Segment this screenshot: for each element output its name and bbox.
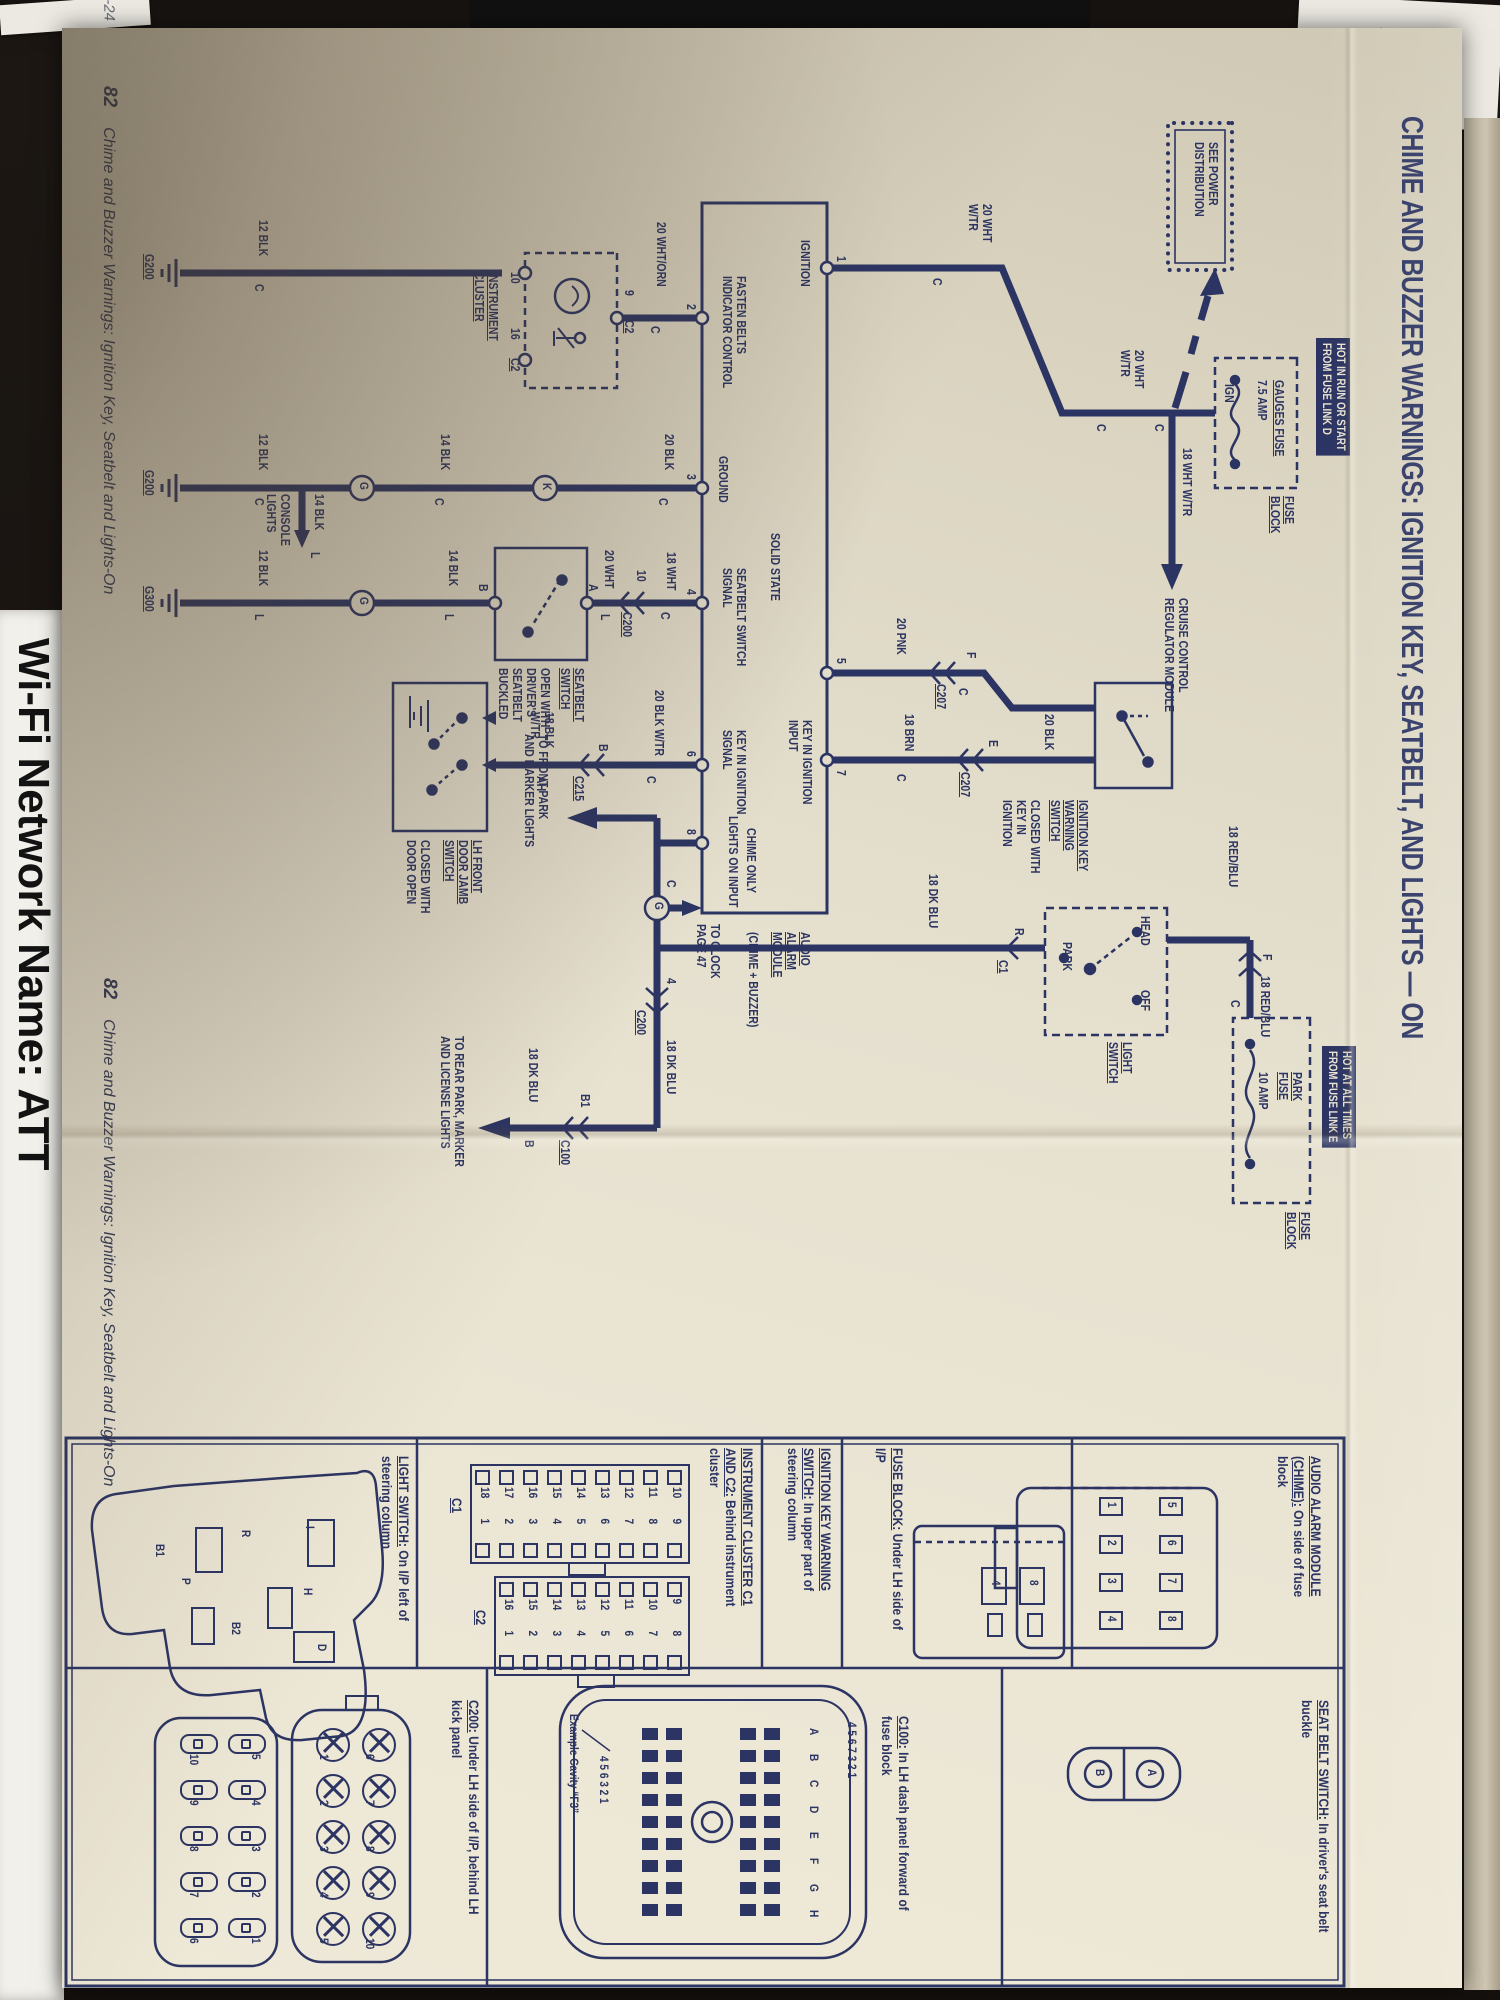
footer-left: 82Chime and Buzzer Warnings: Ignition Ke… [98, 86, 120, 594]
pin [619, 1655, 634, 1670]
wire-label: SEATBELT SWITCH SIGNAL [720, 568, 748, 666]
wire-label: CONSOLE LIGHTS [264, 494, 292, 546]
c100-cavity-letter: E [807, 1832, 820, 1839]
pin [667, 1543, 682, 1558]
wire-label: A [586, 584, 600, 592]
wire-label: C200 [620, 612, 634, 637]
wire-label: 10 AMP [1256, 1072, 1270, 1110]
handwriting-mat: -24 [100, 0, 118, 21]
wire-label: B [522, 1140, 536, 1148]
c200-terminal-number: 10 [187, 1754, 200, 1765]
pin [547, 1470, 562, 1485]
pin: 4 [574, 1631, 588, 1637]
connector-pin-number: 3 [1105, 1578, 1118, 1584]
wire-label: 4 [664, 978, 678, 984]
wire-label: 16 [508, 328, 522, 340]
wire-label: TO CLOCK PAGE 47 [694, 924, 722, 979]
wire-label: 10 [634, 570, 648, 582]
light-switch-pin: P [179, 1578, 192, 1585]
pin: 8 [646, 1519, 660, 1525]
c200-pin-number: 4 [317, 1892, 330, 1898]
page-title: CHIME AND BUZZER WARNINGS: IGNITION KEY,… [1394, 116, 1430, 1039]
pin: 16 [502, 1599, 516, 1610]
c200-terminal-number: 7 [187, 1892, 200, 1898]
wire-label: 7 [834, 770, 848, 776]
c200-terminal-number: 3 [249, 1846, 262, 1852]
page-number: 82 [99, 86, 120, 107]
c200-terminal-number: 2 [249, 1892, 262, 1898]
wire-label: B [476, 584, 490, 592]
connector-pin-number: 7 [1165, 1578, 1178, 1584]
wire-label: FUSE BLOCK [1268, 496, 1296, 533]
wire-label: CHIME ONLY [744, 828, 758, 893]
c100-cavity-letter: D [807, 1806, 820, 1813]
wire-label: G [652, 902, 665, 910]
c200-terminal-number: 8 [187, 1846, 200, 1852]
wire-label: L [308, 552, 322, 558]
pin: 3 [550, 1631, 564, 1637]
wire-label: 20 BLK [1042, 714, 1056, 750]
wire-label: LH FRONT DOOR JAMB SWITCH [442, 840, 484, 904]
wire-label: 1 [834, 256, 848, 262]
wire-label: C [894, 774, 908, 782]
pin: 4 [550, 1519, 564, 1525]
pin [595, 1470, 610, 1485]
c100-cavity-note: Example Cavity “F3” [567, 1714, 580, 1813]
wire-label: OPEN WITH DRIVER'S SEATBELT BUCKLED [496, 668, 552, 728]
wire-label: AUDIO ALARM MODULE [770, 932, 812, 978]
c100-cavity-letter: H [807, 1910, 820, 1917]
pin [499, 1655, 514, 1670]
pin [667, 1655, 682, 1670]
wire-label: 18 RED/BLU [1226, 826, 1240, 887]
pin: 7 [646, 1631, 660, 1637]
pin [643, 1470, 658, 1485]
schematic-art [62, 28, 1462, 1988]
pin: 2 [526, 1631, 540, 1637]
pin [643, 1543, 658, 1558]
photo-stage: -24 D.C Wi-Fi Network Name: ATT [0, 0, 1500, 2000]
c200-pin-number: 3 [317, 1846, 330, 1852]
wire-label: 12 BLK [256, 550, 270, 586]
pin: 6 [622, 1631, 636, 1637]
wire-label: K [540, 483, 553, 490]
wire-label: 20 BLK [662, 434, 676, 470]
wire-label: 18 RED/BLU [1258, 976, 1272, 1037]
wire-label: 4 [684, 589, 698, 595]
wire-label: C [648, 326, 662, 334]
wire-label: 12 BLK [256, 434, 270, 470]
c100-cavity-letter: G [807, 1884, 820, 1892]
c200-terminal [228, 1826, 266, 1846]
pin [571, 1655, 586, 1670]
pin [499, 1470, 514, 1485]
pin [595, 1655, 610, 1670]
pin: 12 [598, 1599, 612, 1610]
wire-label: 18 DK BLU [664, 1040, 678, 1094]
connector-pin-number: 6 [1165, 1540, 1178, 1546]
c200-terminal-number: 6 [187, 1938, 200, 1944]
c200-terminal-number: 4 [249, 1800, 262, 1806]
c200-terminal [180, 1872, 218, 1892]
wire-label: C [252, 284, 266, 292]
wire-label: G200 [142, 470, 156, 496]
connector-id: C1 [448, 1498, 464, 1513]
light-switch-pin: D [315, 1644, 328, 1651]
pin: 14 [550, 1599, 564, 1610]
wire-label: CLOSED WITH KEY IN IGNITION [1000, 800, 1042, 874]
wire-label: IGNITION [798, 240, 812, 287]
locator-heading: LIGHT SWITCH: On I/P left of steering co… [379, 1456, 412, 1641]
pin [595, 1543, 610, 1558]
pin: 8 [670, 1631, 684, 1637]
c200-terminal-number: 1 [249, 1938, 262, 1944]
wire-label: AH [534, 776, 548, 791]
pin [499, 1582, 514, 1597]
pin: 3 [526, 1519, 540, 1525]
pin [667, 1582, 682, 1597]
wire-label: C [930, 278, 944, 286]
c200-pin-number: 1 [317, 1754, 330, 1760]
footer-text: Chime and Buzzer Warnings: Ignition Key,… [100, 1019, 117, 1486]
pin [667, 1470, 682, 1485]
pin: 1 [502, 1631, 516, 1637]
locator-heading: INSTRUMENT CLUSTER C1 AND C2: Behind ins… [706, 1448, 756, 1624]
wire-label: 3 [684, 474, 698, 480]
wire-label: KEY IN IGNITION SIGNAL [720, 730, 748, 814]
pin: 14 [574, 1487, 588, 1498]
wire-label: CLOSED WITH DOOR OPEN [404, 840, 432, 914]
wire-label: G [357, 482, 370, 490]
c100-cavity-letter: F [807, 1858, 820, 1864]
wire-label: LIGHTS ON INPUT [726, 816, 740, 908]
c200-terminal [228, 1872, 266, 1892]
connector-pin-letter: A [1145, 1769, 1158, 1776]
wire-label: C [656, 498, 670, 506]
connector-pin-number: 1 [1105, 1502, 1118, 1508]
pin [475, 1543, 490, 1558]
light-switch-pin: H [301, 1588, 314, 1595]
c200-terminal [228, 1734, 266, 1754]
wire-label: C2 [508, 358, 522, 371]
wire-label: 18 WHT [664, 552, 678, 591]
wire-label: C [432, 498, 446, 506]
wire-label: 18 WHT W/TR [1180, 448, 1194, 516]
wire-label: G200 [142, 254, 156, 280]
pin [499, 1543, 514, 1558]
pin: 7 [622, 1519, 636, 1525]
wire-label: KEY IN IGNITION INPUT [786, 720, 814, 804]
pin [547, 1655, 562, 1670]
light-switch-pin: B2 [229, 1622, 242, 1635]
wire-label: IGN [1222, 384, 1236, 403]
connector-id: C2 [472, 1610, 488, 1625]
footer-right: 82Chime and Buzzer Warnings: Ignition Ke… [98, 978, 120, 1486]
wire-label: C100 [558, 1140, 572, 1165]
wire-label: 10 [508, 272, 522, 284]
wire-label: LIGHT SWITCH [1106, 1042, 1134, 1083]
wire-label: 8 [684, 829, 698, 835]
footer-text: Chime and Buzzer Warnings: Ignition Key,… [100, 127, 117, 594]
wire-label: SEE POWER DISTRIBUTION [1192, 142, 1220, 217]
pin: 15 [526, 1599, 540, 1610]
pin [523, 1582, 538, 1597]
wire-label: F [964, 652, 978, 658]
pin: 13 [598, 1487, 612, 1498]
light-switch-pin: B1 [153, 1544, 166, 1557]
wire-label: HOT AT ALL TIMES FROM FUSE LINK E [1322, 1046, 1356, 1147]
wire-label: C2 [622, 320, 636, 333]
pin: 5 [574, 1519, 588, 1525]
wire-label: C [658, 612, 672, 620]
wire-label: C207 [958, 772, 972, 797]
c200-pin-number: 2 [317, 1800, 330, 1806]
light-switch-pin: I [303, 1526, 316, 1529]
locator-heading: IGNITION KEY WARNING SWITCH: In upper pa… [784, 1448, 834, 1624]
connector-pin-number: 2 [1105, 1540, 1118, 1546]
fuse-number: 8 [1027, 1580, 1040, 1586]
pin [571, 1582, 586, 1597]
wire-label: 5 [834, 658, 848, 664]
wire-label: SEATBELT SWITCH [558, 668, 586, 722]
wire-label: B1 [578, 1094, 592, 1107]
wire-label: 20 WHT [602, 550, 616, 589]
pin: 11 [646, 1487, 660, 1498]
wire-label: 18 DK BLU [526, 1048, 540, 1102]
wire-label: 7.5 AMP [1255, 380, 1269, 420]
c100-cavity-letter: C [807, 1780, 820, 1787]
wire-label: 14 BLK [438, 434, 452, 470]
wire-label: HEAD [1138, 916, 1152, 946]
wire-label: C [644, 776, 658, 784]
pin [643, 1655, 658, 1670]
wire-label: PARK FUSE [1276, 1072, 1304, 1101]
wifi-sign-text: Wi-Fi Network Name: ATT [8, 638, 58, 1171]
wire-label: 20 WHT W/TR [1118, 350, 1146, 389]
pin [619, 1543, 634, 1558]
wire-label: 18 BRN [902, 714, 916, 751]
wire-label: (CHIME + BUZZER) [746, 932, 760, 1027]
wire-label: C [664, 880, 678, 888]
c200-terminal [180, 1918, 218, 1938]
wire-label: C200 [634, 1010, 648, 1035]
wire-label: C1 [996, 960, 1010, 973]
wire-label: C [1094, 424, 1108, 432]
pin: 1 [478, 1519, 492, 1525]
c200-pin-number: 5 [317, 1938, 330, 1944]
connector-pin-letter: B [1093, 1769, 1106, 1776]
connector-pin-number: 5 [1165, 1502, 1178, 1508]
pin: 9 [670, 1599, 684, 1605]
wire-label: L [252, 614, 266, 620]
c100-pin-numbers: 4 5 6 7 3 2 1 [845, 1722, 858, 1778]
pin [523, 1543, 538, 1558]
wire-label: E [986, 740, 1000, 747]
wire-label: FUSE BLOCK [1284, 1212, 1312, 1249]
pin: 18 [478, 1487, 492, 1498]
c200-pin-number: 7 [363, 1800, 376, 1806]
connector-pin-number: 8 [1165, 1616, 1178, 1622]
c200-terminal [180, 1734, 218, 1754]
locator-heading: FUSE BLOCK: Under LH side of I/P [873, 1448, 906, 1642]
wire-label: INSTRUMENT CLUSTER [472, 272, 500, 341]
pin: 13 [574, 1599, 588, 1610]
wire-label: HOT IN RUN OR START FROM FUSE LINK D [1316, 338, 1350, 456]
pin-grid-C1: 109118127136145154163172181 [470, 1464, 690, 1564]
pin: 10 [646, 1599, 660, 1610]
wire-label: GAUGES FUSE [1272, 380, 1286, 456]
locator-heading: AUDIO ALARM MODULE (CHIME): On side of f… [1274, 1456, 1324, 1602]
wire-label: L [442, 614, 456, 620]
wire-label: 14 BLK [446, 550, 460, 586]
pin [547, 1543, 562, 1558]
c200-terminal [228, 1918, 266, 1938]
wire-label: B [596, 744, 610, 752]
wire-label: 6 [684, 751, 698, 757]
c100-cavity-letter: A [807, 1728, 820, 1735]
c200-pin-number: 9 [363, 1892, 376, 1898]
pin: 10 [670, 1487, 684, 1498]
wire-label: OFF [1138, 990, 1152, 1011]
light-switch-pin: R [239, 1530, 252, 1537]
locator-heading: C200: Under LH side of I/P, behind LH ki… [449, 1700, 482, 1928]
wire-label: R [1012, 928, 1026, 936]
pin: 11 [622, 1599, 636, 1610]
pin [595, 1582, 610, 1597]
wire-label: C207 [934, 684, 948, 709]
wire-label: G [357, 597, 370, 605]
pin: 6 [598, 1519, 612, 1525]
wire-label: 2 [684, 304, 698, 310]
wire-label: 20 BLK W/TR [652, 690, 666, 756]
c200-pin-number: 10 [363, 1938, 376, 1949]
pin: 15 [550, 1487, 564, 1498]
wire-label: C [956, 688, 970, 696]
c100-pin-numbers: 4 5 6 3 2 1 [597, 1756, 610, 1804]
pin [475, 1470, 490, 1485]
pin [643, 1582, 658, 1597]
wire-label: FASTEN BELTS INDICATOR CONTROL [720, 276, 748, 388]
wire-label: C [1152, 424, 1166, 432]
wire-label: IGNITION KEY WARNING SWITCH [1048, 800, 1090, 871]
wire-label: PARK [1060, 942, 1074, 971]
c200-terminal-number: 5 [249, 1754, 262, 1760]
wire-label: 12 BLK [256, 220, 270, 256]
c200-pin-number: 6 [363, 1754, 376, 1760]
locator-heading: SEAT BELT SWITCH: In driver's seat belt … [1299, 1700, 1332, 1941]
pin: 12 [622, 1487, 636, 1498]
pin [571, 1543, 586, 1558]
wire-label: 18 DK BLU [926, 874, 940, 928]
wire-label: C [1228, 1000, 1242, 1008]
pin [619, 1582, 634, 1597]
wire-label: CRUISE CONTROL REGULATOR MODULE [1162, 598, 1190, 712]
pin [523, 1655, 538, 1670]
wire-label: 20 PNK [894, 618, 908, 655]
wire-label: GROUND [716, 456, 730, 503]
under-page-edge [1464, 118, 1500, 1990]
pin: 2 [502, 1519, 516, 1525]
c100-cavity-letter: B [807, 1754, 820, 1761]
fuse-number: 4 [989, 1580, 1002, 1586]
wire-label: F [1260, 954, 1274, 960]
pin [619, 1470, 634, 1485]
pin [523, 1470, 538, 1485]
wire-label: TO REAR PARK, MARKER AND LICENSE LIGHTS [438, 1036, 466, 1167]
page-number: 82 [99, 978, 120, 999]
pin: 17 [502, 1487, 516, 1498]
c200-terminal [228, 1780, 266, 1800]
pin: 5 [598, 1631, 612, 1637]
wire-label: C215 [572, 776, 586, 801]
connector-pin-number: 4 [1105, 1616, 1118, 1622]
wire-label: L [598, 614, 612, 620]
locator-heading: C100: In LH dash panel forward of fuse b… [879, 1716, 912, 1927]
wire-label: 9 [622, 290, 636, 296]
pin [571, 1470, 586, 1485]
wire-label: 20 WHT/ORN [654, 222, 668, 287]
wire-label: 14 BLK [312, 494, 326, 530]
pin: 16 [526, 1487, 540, 1498]
wifi-sign: Wi-Fi Network Name: ATT [0, 610, 64, 2000]
pin-grid-C2: 98107116125134143152161 [494, 1576, 690, 1676]
wire-label: SOLID STATE [768, 533, 782, 601]
c200-terminal [180, 1826, 218, 1846]
pin: 9 [670, 1519, 684, 1525]
wire-label: G300 [142, 586, 156, 612]
c200-terminal-number: 9 [187, 1800, 200, 1806]
c200-terminal [180, 1780, 218, 1800]
c200-pin-number: 8 [363, 1846, 376, 1852]
pin [547, 1582, 562, 1597]
wire-label: 20 WHT W/TR [966, 204, 994, 243]
manual-page: CHIME AND BUZZER WARNINGS: IGNITION KEY,… [62, 28, 1462, 1988]
